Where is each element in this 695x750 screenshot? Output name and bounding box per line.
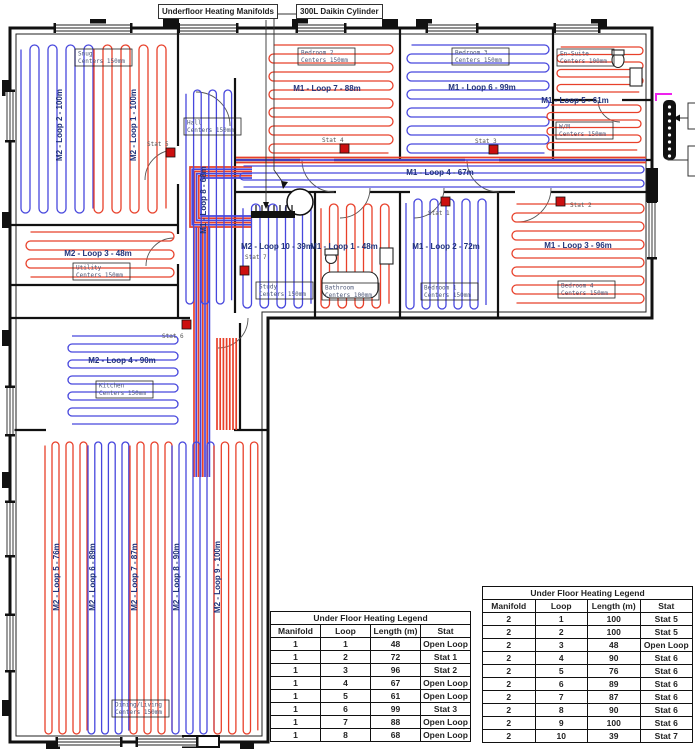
svg-text:Centers 150mm: Centers 150mm [559, 131, 606, 138]
stat-label: Stat 6 [162, 333, 184, 340]
svg-text:Centers 150mm: Centers 150mm [424, 292, 471, 299]
legend-header: Stat [421, 625, 471, 638]
legend-cell: 4 [535, 652, 588, 665]
svg-text:Bedroom 4: Bedroom 4 [561, 283, 594, 290]
legend-cell: 100 [588, 717, 641, 730]
legend-cell: 96 [371, 664, 421, 677]
loop-label: M2 - Loop 1 - 100m [129, 89, 138, 161]
svg-text:Centers 150mm: Centers 150mm [76, 272, 123, 279]
manifold-bar [251, 211, 295, 218]
legend-cell: Stat 5 [640, 613, 693, 626]
window-symbol [426, 23, 479, 33]
legend-cell: 5 [321, 690, 371, 703]
window-symbol [296, 23, 347, 33]
legend-cell: 90 [588, 652, 641, 665]
room-label: Dining/LivingCenters 150mm [112, 700, 169, 717]
stat-label: Stat 5 [147, 141, 169, 148]
svg-text:Centers 150mm: Centers 150mm [455, 57, 502, 64]
loop-label: M1 - Loop 2 - 72m [412, 242, 480, 251]
heating-loop-blue [68, 336, 178, 424]
legend-header: Loop [321, 625, 371, 638]
legend-cell: 2 [483, 730, 536, 743]
room-label: StudyCenters 150mm [256, 282, 313, 299]
legend-cell: 2 [483, 639, 536, 652]
loop-label: M2 - Loop 2 - 100m [55, 89, 64, 161]
legend-cell: 1 [271, 638, 321, 651]
manifold-ports [256, 205, 292, 211]
window-symbol [554, 23, 601, 33]
legend-cell: 2 [483, 717, 536, 730]
stat-marker: Stat 3 [475, 138, 498, 154]
svg-text:Bedroom 1: Bedroom 1 [424, 285, 457, 292]
legend-cell: 48 [371, 638, 421, 651]
svg-text:Centers 150mm: Centers 150mm [561, 290, 608, 297]
svg-text:W/M: W/M [559, 124, 570, 131]
legend-row: 22100Stat 5 [483, 626, 693, 639]
svg-text:Bathroom: Bathroom [325, 285, 354, 292]
legend-cell: 8 [321, 729, 371, 742]
room-label: Bedroom 2Centers 150mm [298, 48, 355, 65]
stat-marker: Stat 6 [162, 320, 191, 340]
stat-label: Stat 4 [322, 137, 344, 144]
legend-cell: 1 [271, 651, 321, 664]
legend-cell: 100 [588, 613, 641, 626]
window-symbol [5, 386, 15, 437]
legend-row: 1561Open Loop [271, 690, 471, 703]
legend-cell: 9 [535, 717, 588, 730]
manifold-right-assembly [656, 94, 695, 176]
stat-label: Stat 3 [475, 138, 497, 145]
legend-header: Stat [640, 600, 693, 613]
legend-cell: 2 [535, 626, 588, 639]
legend-cell: Open Loop [421, 677, 471, 690]
legend-cell: 6 [321, 703, 371, 716]
legend-cell: Stat 7 [640, 730, 693, 743]
legend-cell: 2 [483, 613, 536, 626]
window-symbol [5, 90, 15, 143]
legend-cell: 87 [588, 691, 641, 704]
legend-cell: 2 [483, 652, 536, 665]
stat-marker: Stat 4 [322, 137, 349, 153]
room-label: Bedroom 4Centers 150mm [558, 281, 615, 298]
legend-cell: 99 [371, 703, 421, 716]
legend-cell: 100 [588, 626, 641, 639]
legend-cell: 2 [483, 704, 536, 717]
legend-cell: Stat 6 [640, 691, 693, 704]
svg-text:Bedroom 2: Bedroom 2 [301, 50, 334, 57]
legend-row: 2348Open Loop [483, 639, 693, 652]
stat-marker: Stat 2 [556, 197, 592, 209]
door-openings [173, 95, 622, 323]
leader-arrowhead [281, 181, 288, 189]
legend-cell: 1 [535, 613, 588, 626]
svg-text:Dining/Living: Dining/Living [115, 702, 162, 709]
legend-cell: 67 [371, 677, 421, 690]
loop-label: M1 - Loop 3 - 96m [544, 241, 612, 250]
legend-cell: 89 [588, 678, 641, 691]
window-symbol [136, 737, 199, 747]
legend-cell: Open Loop [421, 690, 471, 703]
legend-cell: 2 [483, 665, 536, 678]
legend-cell: 68 [371, 729, 421, 742]
legend-cell: 72 [371, 651, 421, 664]
legend-header: Length (m) [588, 600, 641, 613]
legend-cell: 5 [535, 665, 588, 678]
loop-label: M1 - Loop 5 - 61m [541, 96, 609, 105]
legend-row: 2490Stat 6 [483, 652, 693, 665]
legend-table-1: Under Floor Heating LegendManifoldLoopLe… [270, 611, 471, 742]
room-label: Bedroom 3Centers 150mm [452, 48, 509, 65]
svg-text:Centers 150mm: Centers 150mm [115, 709, 162, 716]
svg-text:Centers 150mm: Centers 150mm [99, 390, 146, 397]
legend-cell: 2 [483, 678, 536, 691]
svg-text:Centers 100mm: Centers 100mm [325, 292, 372, 299]
legend-header: Loop [535, 600, 588, 613]
legend-cell: Stat 6 [640, 652, 693, 665]
legend-cell: 6 [535, 678, 588, 691]
legend-row: 2787Stat 6 [483, 691, 693, 704]
legend-cell: 8 [535, 704, 588, 717]
loop-label: M2 - Loop 5 - 76m [52, 543, 61, 611]
legend-cell: 48 [588, 639, 641, 652]
callout-300l-daikin-cylinder: 300L Daikin Cylinder [296, 4, 383, 19]
loop-label: M2 - Loop 8 - 90m [172, 543, 181, 611]
ensuite-fixtures [612, 50, 642, 86]
legend-header: Manifold [483, 600, 536, 613]
legend-title: Under Floor Heating Legend [271, 612, 471, 625]
legend-cell: 2 [483, 626, 536, 639]
legend-cell: 1 [271, 729, 321, 742]
legend-cell: Stat 2 [421, 664, 471, 677]
floor-plan-canvas: SnugCenters 150mmHallCenters 150mmBedroo… [0, 0, 695, 750]
legend-cell: Open Loop [421, 638, 471, 651]
magenta-pipe [656, 94, 672, 101]
legend-cell: 3 [535, 639, 588, 652]
callout-underfloor-heating-manifolds: Underfloor Heating Manifolds [158, 4, 278, 19]
legend-cell: 61 [371, 690, 421, 703]
window-symbol [178, 23, 239, 33]
legend-cell: Stat 6 [640, 678, 693, 691]
legend-row: 1788Open Loop [271, 716, 471, 729]
legend-cell: 1 [271, 664, 321, 677]
legend-row: 21039Stat 7 [483, 730, 693, 743]
legend-table-2: Under Floor Heating LegendManifoldLoopLe… [482, 586, 693, 743]
svg-text:Centers 150mm: Centers 150mm [301, 57, 348, 64]
svg-text:Hall: Hall [187, 120, 202, 127]
window-symbol [56, 737, 123, 747]
legend-row: 1272Stat 1 [271, 651, 471, 664]
svg-text:Centers 150mm: Centers 150mm [187, 127, 234, 134]
stat-marker: Stat 5 [147, 141, 175, 157]
loop-label: M1 - Loop 6 - 99m [448, 83, 516, 92]
svg-text:En-Suite: En-Suite [560, 51, 589, 58]
legend-cell: Stat 5 [640, 626, 693, 639]
legend-cell: 76 [588, 665, 641, 678]
legend-row: 21100Stat 5 [483, 613, 693, 626]
loop-label: M1 - Loop 7 - 88m [293, 84, 361, 93]
window-symbol [647, 201, 657, 260]
legend-cell: Stat 1 [421, 651, 471, 664]
legend-row: 1396Stat 2 [271, 664, 471, 677]
stat-label: Stat 7 [245, 254, 267, 261]
window-symbol [54, 23, 133, 33]
loop-label: M2 - Loop 10 - 39m [241, 242, 313, 251]
legend-cell: 39 [588, 730, 641, 743]
window-symbol [5, 614, 15, 673]
loop-label: M2 - Loop 3 - 48m [64, 249, 132, 258]
loop-label: M2 - Loop 7 - 87m [130, 543, 139, 611]
legend-cell: 1 [271, 677, 321, 690]
legend-header: Length (m) [371, 625, 421, 638]
legend-cell: 1 [271, 690, 321, 703]
legend-cell: Stat 6 [640, 717, 693, 730]
legend-cell: 1 [271, 716, 321, 729]
legend-cell: 1 [271, 703, 321, 716]
stat-marker: Stat 7 [240, 254, 267, 275]
stat-label: Stat 2 [570, 202, 592, 209]
legend-title: Under Floor Heating Legend [483, 587, 693, 600]
legend-cell: 10 [535, 730, 588, 743]
legend-cell: 3 [321, 664, 371, 677]
legend-cell: Stat 3 [421, 703, 471, 716]
svg-text:Utility: Utility [76, 265, 102, 272]
legend-row: 2576Stat 6 [483, 665, 693, 678]
legend-row: 1467Open Loop [271, 677, 471, 690]
legend-cell: 7 [321, 716, 371, 729]
legend-cell: 90 [588, 704, 641, 717]
legend-cell: 2 [321, 651, 371, 664]
loop-label: M1 - Loop 1 - 48m [310, 242, 378, 251]
window-symbol [5, 501, 15, 558]
svg-text:Centers 100mm: Centers 100mm [560, 58, 607, 65]
loop-label: M2 - Loop 6 - 89m [88, 543, 97, 611]
legend-row: 1699Stat 3 [271, 703, 471, 716]
svg-text:Centers 150mm: Centers 150mm [259, 291, 306, 298]
legend-cell: Stat 6 [640, 665, 693, 678]
room-label: UtilityCenters 150mm [73, 263, 130, 280]
loop-label: M2 - Loop 9 - 100m [213, 541, 222, 613]
legend-row: 29100Stat 6 [483, 717, 693, 730]
legend-cell: 88 [371, 716, 421, 729]
legend-header: Manifold [271, 625, 321, 638]
legend-row: 1868Open Loop [271, 729, 471, 742]
loop-label: M2 - Loop 4 - 90m [88, 356, 156, 365]
svg-text:Study: Study [259, 284, 277, 291]
legend-cell: 4 [321, 677, 371, 690]
room-label: En-SuiteCenters 100mm [557, 49, 614, 66]
loop-label: M1 - Loop 8 - 68m [199, 166, 208, 234]
legend-row: 2890Stat 6 [483, 704, 693, 717]
svg-text:Snug: Snug [78, 51, 93, 58]
legend-cell: Open Loop [421, 729, 471, 742]
legend-cell: Open Loop [421, 716, 471, 729]
svg-text:Kitchen: Kitchen [99, 383, 125, 390]
room-label: W/MCenters 150mm [556, 122, 613, 139]
legend-cell: 2 [483, 691, 536, 704]
legend-row: 2689Stat 6 [483, 678, 693, 691]
legend-cell: Stat 6 [640, 704, 693, 717]
loop-label: M1 - Loop 4 - 67m [406, 168, 474, 177]
svg-text:Centers 150mm: Centers 150mm [78, 58, 125, 65]
room-label: HallCenters 150mm [184, 118, 241, 135]
svg-text:Bedroom 3: Bedroom 3 [455, 50, 488, 57]
legend-cell: Open Loop [640, 639, 693, 652]
legend-cell: 7 [535, 691, 588, 704]
stat-label: Stat 1 [428, 210, 450, 217]
legend-cell: 1 [321, 638, 371, 651]
legend-row: 1148Open Loop [271, 638, 471, 651]
